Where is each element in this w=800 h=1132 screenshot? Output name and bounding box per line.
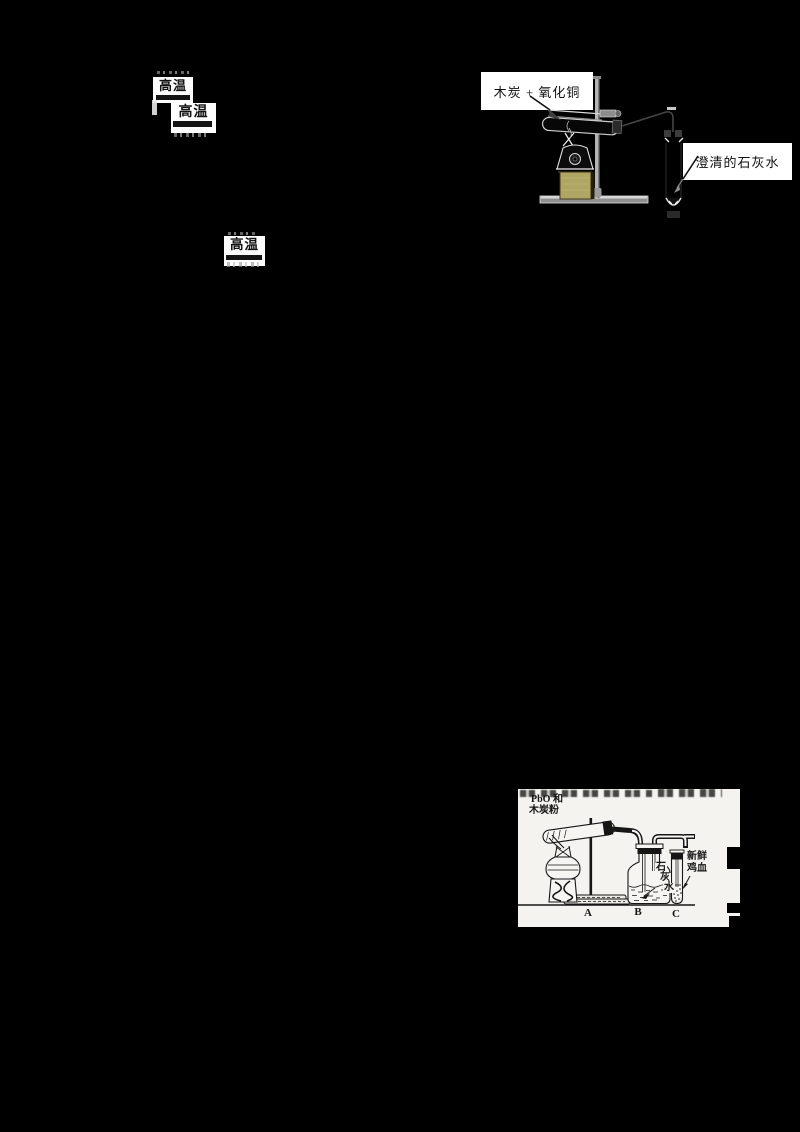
lamp-base-block: [560, 172, 591, 199]
marker-c: C: [668, 908, 684, 920]
marker-a: A: [580, 907, 596, 919]
scan-edge-notch: [727, 847, 740, 869]
scan-edge-notch: [729, 916, 740, 927]
equation-condition-box-1: 高温: [153, 77, 193, 103]
text-remnant: [228, 232, 256, 235]
equals-bar: [173, 121, 212, 127]
cropped-text-remnant: [658, 789, 722, 797]
scan-edge-notch: [727, 903, 740, 913]
blood-label-line1: 新鲜: [687, 852, 707, 862]
clamp-icon: [548, 110, 621, 130]
condition-label: 高温: [153, 79, 193, 93]
pbo-apparatus-scan: PbO 和 木炭粉 石 灰 水 新鲜 鸡血 A B C: [518, 789, 740, 927]
pbo-label-line1: PbO 和: [531, 795, 563, 805]
blood-tube-c-icon: [670, 850, 684, 904]
condition-label: 高温: [224, 238, 265, 253]
limewater-label-box: 澄清的石灰水: [683, 143, 792, 180]
equals-bar: [226, 255, 262, 260]
charcoal-cuo-apparatus-diagram: 木炭 + 氧化铜 澄清的石灰水: [470, 60, 800, 230]
limewater-label: 澄清的石灰水: [695, 152, 779, 171]
blood-label-line2: 鸡血: [687, 864, 707, 874]
text-remnant: [174, 133, 206, 137]
text-remnant: [227, 262, 261, 267]
blood-arrow-c-icon: [682, 876, 690, 890]
reagent-label-box: 木炭 + 氧化铜: [481, 72, 593, 110]
text-remnant: [152, 100, 157, 115]
equals-bar: [156, 95, 190, 100]
condition-label: 高温: [171, 105, 216, 120]
pbo-label-line2: 木炭粉: [529, 806, 559, 816]
alcohol-lamp-icon: [556, 145, 595, 199]
test-tube-icon: [542, 117, 622, 135]
limewater-char-3: 水: [663, 883, 675, 893]
test-tube-a-icon: [542, 820, 615, 844]
text-remnant: [157, 71, 189, 74]
limewater-test-tube-icon: [664, 130, 683, 218]
equation-condition-box-2: 高温: [171, 103, 216, 133]
page-background: 高温 高温 高温 木炭 + 氧化铜 澄清的石灰水: [0, 0, 800, 1132]
flame-icon: [563, 128, 574, 146]
marker-b: B: [630, 906, 646, 918]
reagent-label: 木炭 + 氧化铜: [494, 82, 581, 101]
alcohol-lamp-a-icon: [546, 835, 580, 902]
delivery-tube-icon: [622, 107, 676, 132]
